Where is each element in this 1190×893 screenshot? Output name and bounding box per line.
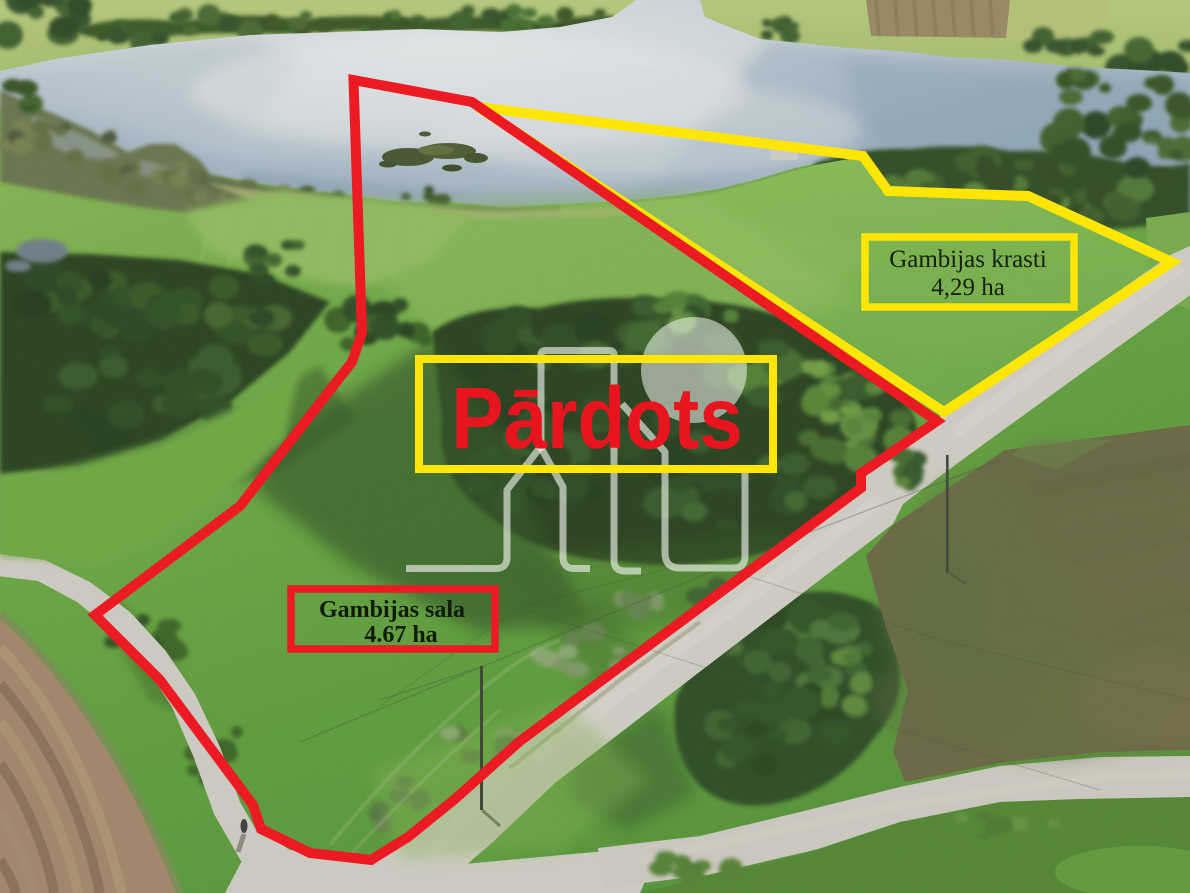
svg-text:4,29 ha: 4,29 ha — [931, 274, 1005, 301]
svg-text:Pārdots: Pārdots — [451, 369, 742, 467]
svg-text:Gambijas krasti: Gambijas krasti — [889, 246, 1047, 273]
svg-text:Gambijas sala: Gambijas sala — [319, 597, 465, 623]
svg-text:4.67 ha: 4.67 ha — [364, 622, 437, 648]
